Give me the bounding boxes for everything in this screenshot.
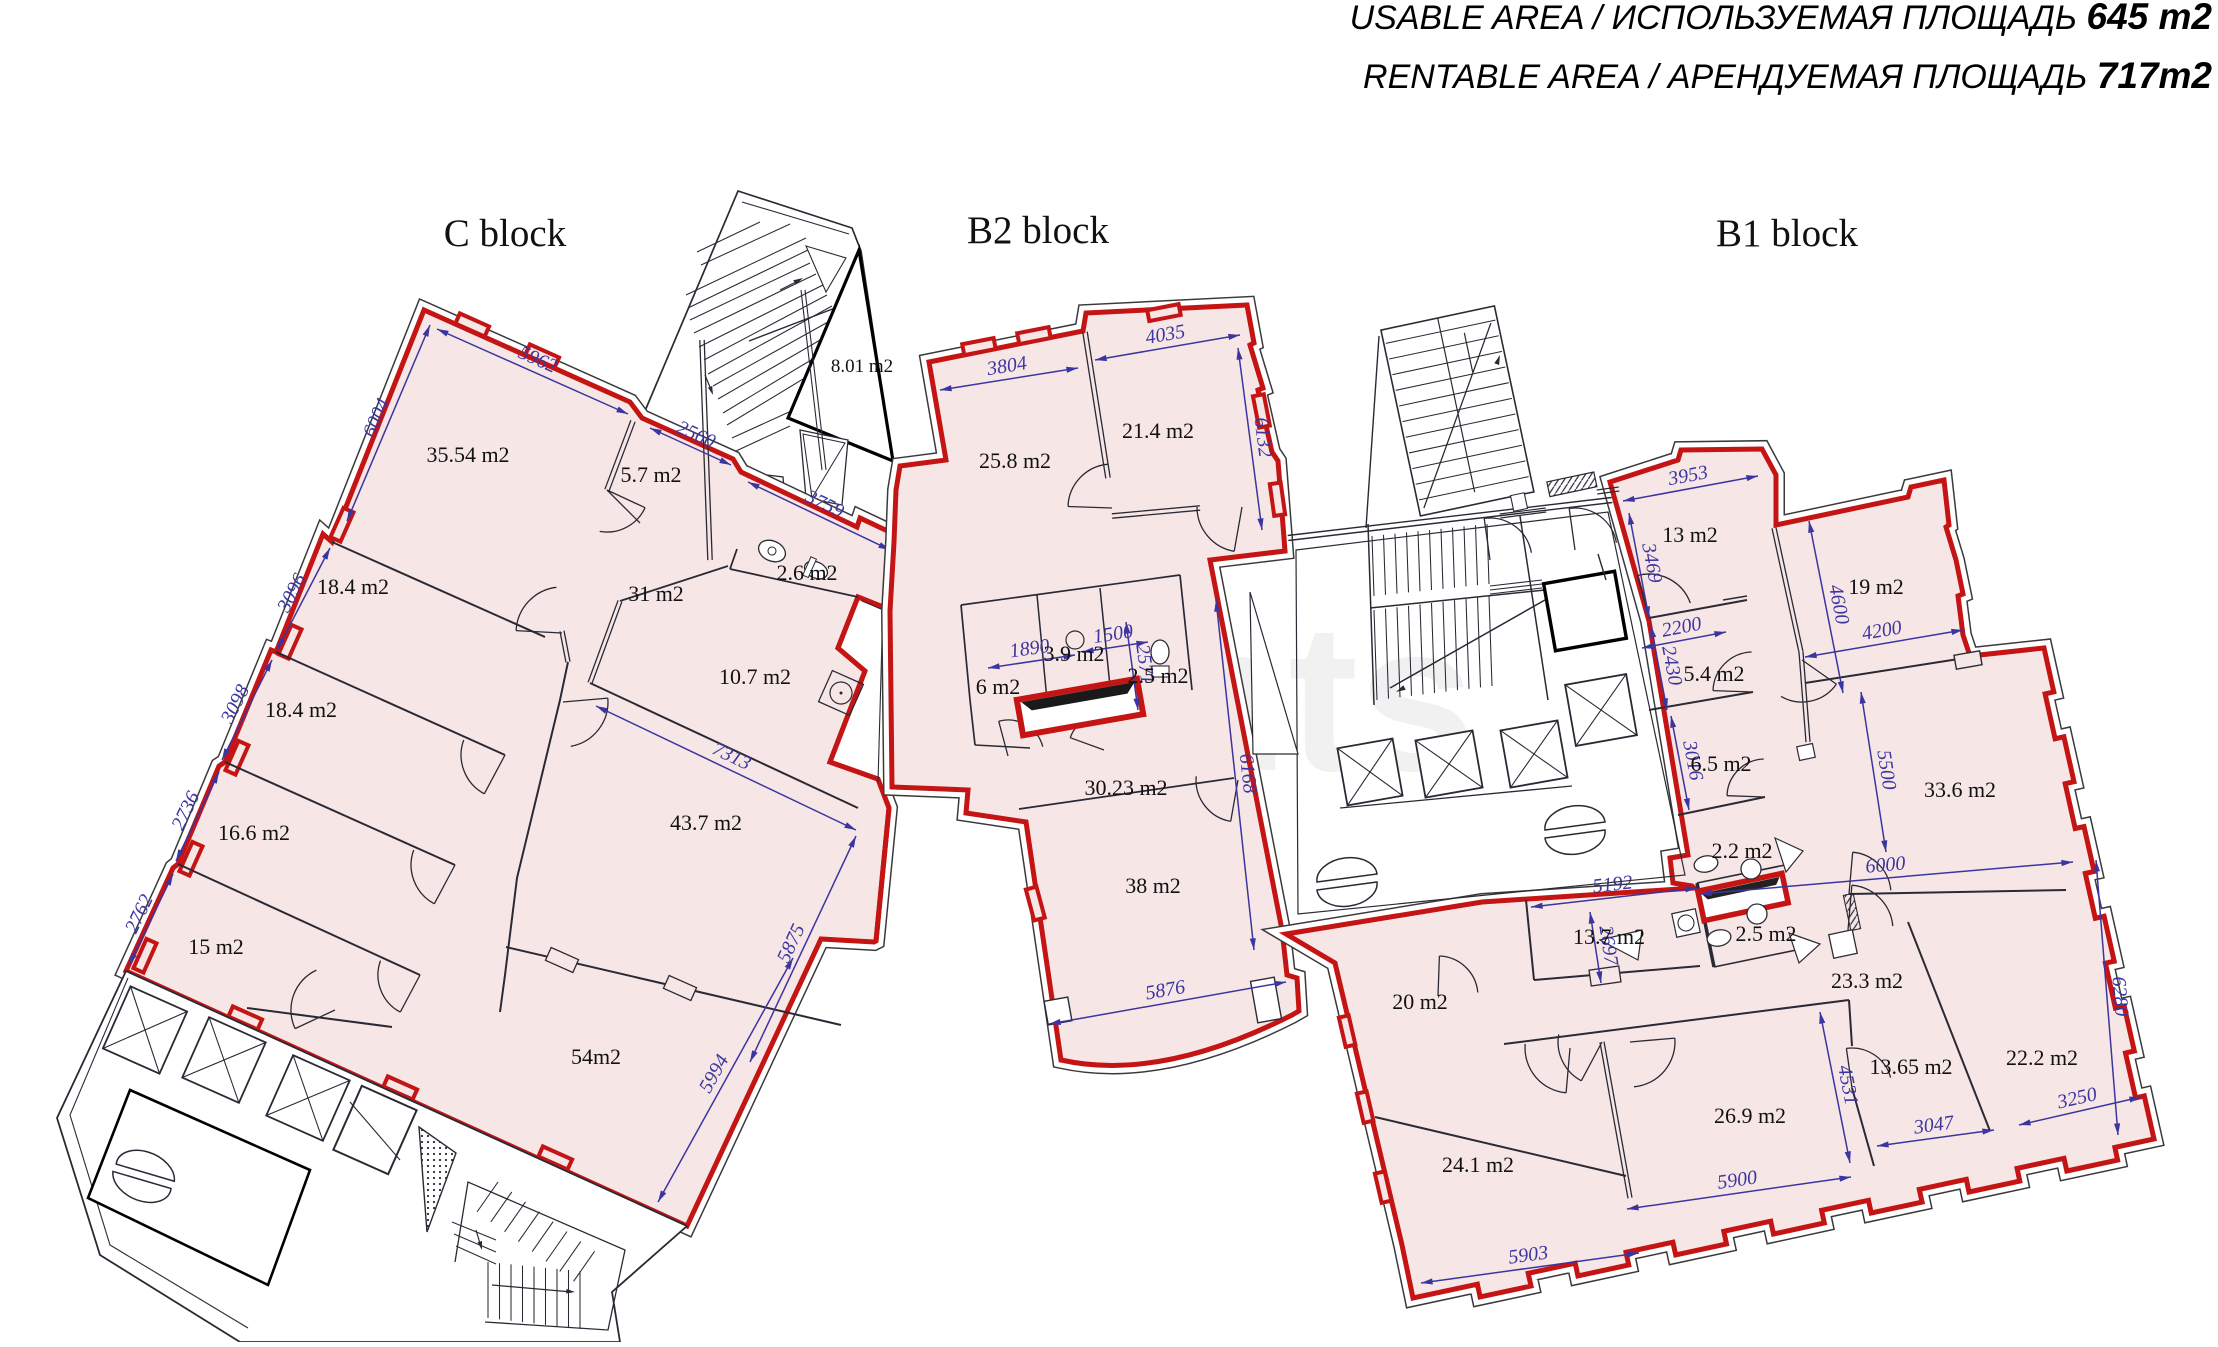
svg-text:6000: 6000 (1865, 852, 1907, 877)
svg-text:13.65 m2: 13.65 m2 (1869, 1054, 1952, 1079)
svg-text:5.7 m2: 5.7 m2 (620, 462, 681, 487)
svg-text:22.2 m2: 22.2 m2 (2006, 1045, 2078, 1070)
svg-text:USABLE AREA / ИСПОЛЬЗУЕМАЯ ПЛО: USABLE AREA / ИСПОЛЬЗУЕМАЯ ПЛОЩАДЬ 645 m… (1350, 0, 2213, 37)
svg-text:3.9 m2: 3.9 m2 (1043, 641, 1104, 666)
svg-text:6280: 6280 (2107, 976, 2132, 1018)
svg-text:35.54 m2: 35.54 m2 (426, 442, 509, 467)
svg-text:38 m2: 38 m2 (1125, 873, 1181, 898)
svg-text:31 m2: 31 m2 (628, 581, 684, 606)
svg-text:2.5 m2: 2.5 m2 (1127, 663, 1188, 688)
svg-text:25.8 m2: 25.8 m2 (979, 448, 1051, 473)
svg-text:43.7 m2: 43.7 m2 (670, 810, 742, 835)
svg-text:21.4 m2: 21.4 m2 (1122, 418, 1194, 443)
svg-text:2.6 m2: 2.6 m2 (776, 560, 837, 585)
svg-text:6.5 m2: 6.5 m2 (1690, 751, 1751, 776)
svg-text:19 m2: 19 m2 (1848, 574, 1904, 599)
svg-text:24.1 m2: 24.1 m2 (1442, 1152, 1514, 1177)
svg-text:RENTABLE AREA / АРЕНДУЕМАЯ ПЛО: RENTABLE AREA / АРЕНДУЕМАЯ ПЛОЩАДЬ 717m2 (1363, 55, 2212, 96)
svg-text:23.3 m2: 23.3 m2 (1831, 968, 1903, 993)
svg-text:33.6 m2: 33.6 m2 (1924, 777, 1996, 802)
svg-text:6168: 6168 (1235, 753, 1261, 795)
svg-text:B2 block: B2 block (967, 209, 1109, 252)
svg-text:B1 block: B1 block (1716, 212, 1858, 255)
svg-text:20 m2: 20 m2 (1392, 989, 1448, 1014)
svg-text:C block: C block (444, 212, 567, 255)
svg-text:8.01 m2: 8.01 m2 (831, 356, 893, 377)
svg-text:5.4 m2: 5.4 m2 (1683, 661, 1744, 686)
svg-text:18.4 m2: 18.4 m2 (265, 697, 337, 722)
svg-text:5192: 5192 (1591, 871, 1633, 897)
svg-text:54m2: 54m2 (571, 1044, 621, 1069)
svg-text:2.5 m2: 2.5 m2 (1735, 921, 1796, 946)
svg-text:10.7 m2: 10.7 m2 (719, 664, 791, 689)
svg-text:13 m2: 13 m2 (1662, 522, 1718, 547)
svg-text:13.7 m2: 13.7 m2 (1573, 924, 1645, 949)
svg-text:30.23 m2: 30.23 m2 (1084, 775, 1167, 800)
svg-text:2.2 m2: 2.2 m2 (1711, 838, 1772, 863)
svg-text:18.4 m2: 18.4 m2 (317, 574, 389, 599)
svg-text:16.6 m2: 16.6 m2 (218, 820, 290, 845)
svg-text:6 m2: 6 m2 (976, 674, 1021, 699)
svg-text:15 m2: 15 m2 (188, 934, 244, 959)
svg-text:26.9 m2: 26.9 m2 (1714, 1103, 1786, 1128)
